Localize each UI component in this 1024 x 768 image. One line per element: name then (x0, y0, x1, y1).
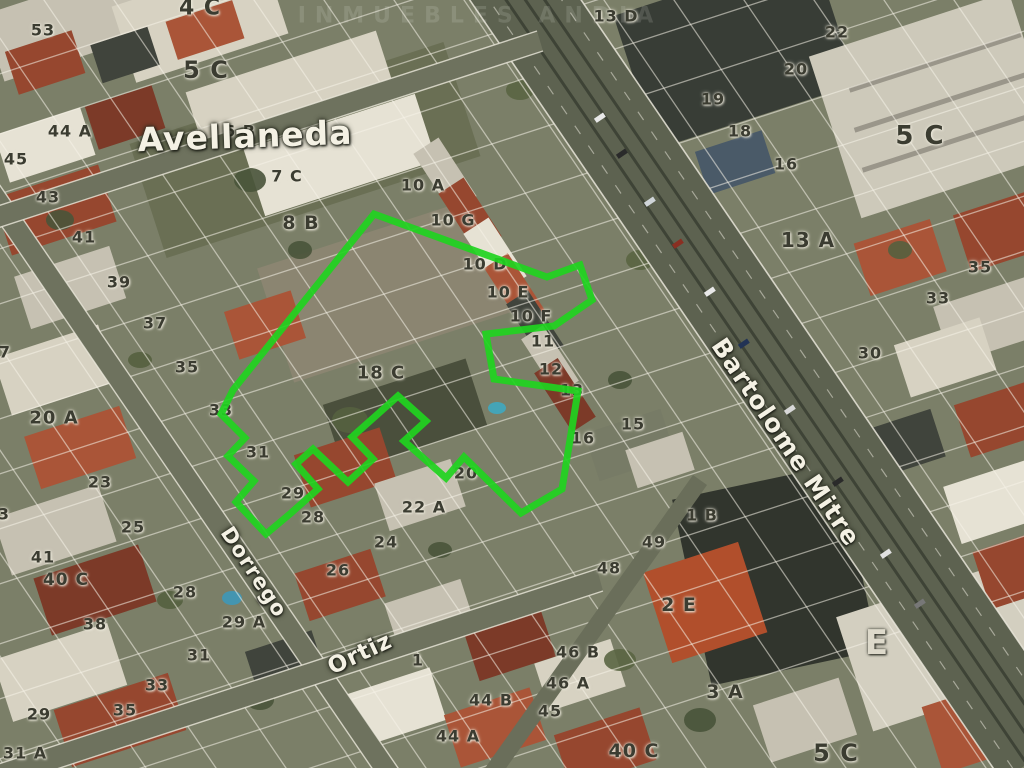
highlight-layer (0, 0, 1024, 768)
highlighted-parcel-outline (221, 214, 592, 534)
satellite-map-image: INMUEBLES ANDIA 534 C5 C44 A456 B4341393… (0, 0, 1024, 768)
